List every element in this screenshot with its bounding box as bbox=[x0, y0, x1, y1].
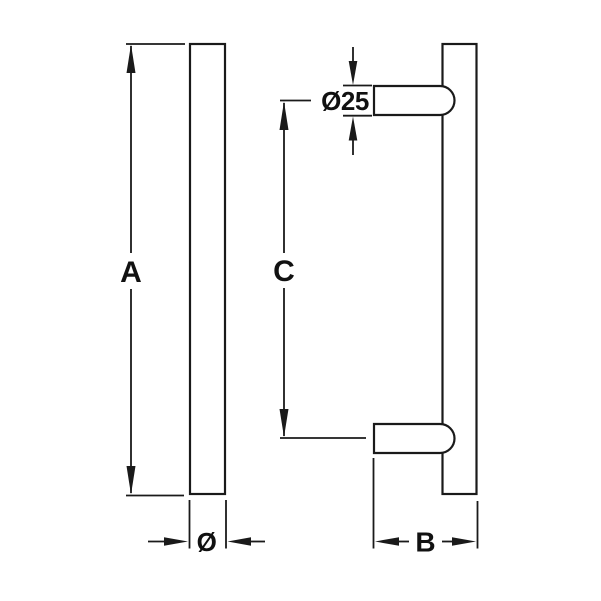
arrowhead-left-icon bbox=[375, 537, 399, 546]
arrowhead-up-icon bbox=[127, 45, 136, 74]
arrowhead-down-icon bbox=[349, 61, 358, 85]
arrowhead-left-icon bbox=[228, 537, 252, 546]
dim-c-label: C bbox=[273, 255, 295, 288]
dim-25-label: Ø25 bbox=[321, 86, 369, 116]
dim-a-label: A bbox=[120, 256, 142, 289]
arrowhead-right-icon bbox=[164, 537, 188, 546]
dim-dia-label: Ø bbox=[197, 527, 217, 557]
arrowhead-down-icon bbox=[280, 409, 289, 437]
arrowhead-up-icon bbox=[349, 117, 358, 141]
front-view: A Ø bbox=[120, 44, 265, 557]
dim-b-label: B bbox=[415, 527, 435, 558]
dimension-post-diameter: Ø25 bbox=[321, 47, 372, 155]
dimension-a: A bbox=[120, 44, 185, 496]
side-view: Ø25 C B bbox=[273, 44, 477, 558]
pull-handle-dimension-drawing: A Ø bbox=[0, 0, 601, 601]
side-view-bottom-post bbox=[374, 424, 455, 453]
arrowhead-down-icon bbox=[127, 466, 136, 495]
arrowhead-right-icon bbox=[452, 537, 476, 546]
dimension-c: C bbox=[273, 101, 366, 439]
front-view-bar bbox=[190, 44, 225, 494]
technical-drawing-canvas: A Ø bbox=[0, 0, 601, 601]
dimension-bar-diameter: Ø bbox=[148, 500, 265, 557]
side-view-top-post bbox=[374, 86, 455, 115]
arrowhead-up-icon bbox=[280, 102, 289, 131]
